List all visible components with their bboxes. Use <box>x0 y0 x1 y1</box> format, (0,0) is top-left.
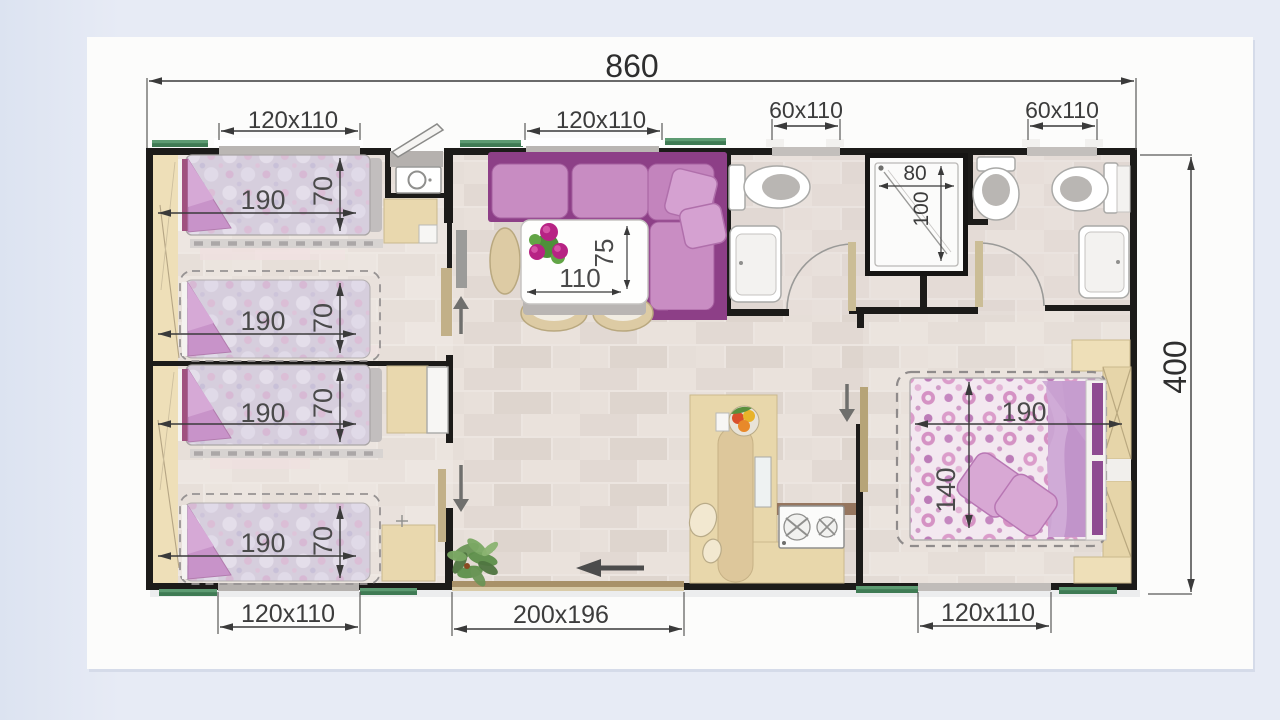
svg-text:70: 70 <box>308 303 338 333</box>
svg-text:80: 80 <box>903 162 926 185</box>
svg-text:190: 190 <box>240 528 285 558</box>
svg-text:60x110: 60x110 <box>1025 97 1099 123</box>
svg-text:120x110: 120x110 <box>248 107 338 134</box>
svg-text:70: 70 <box>308 526 338 556</box>
svg-text:70: 70 <box>308 388 338 418</box>
svg-text:120x110: 120x110 <box>941 599 1035 627</box>
svg-text:190: 190 <box>240 185 285 215</box>
svg-text:100: 100 <box>910 191 933 226</box>
svg-text:75: 75 <box>589 239 619 268</box>
svg-text:400: 400 <box>1157 340 1193 393</box>
svg-text:70: 70 <box>308 176 338 206</box>
svg-text:190: 190 <box>1001 397 1046 427</box>
svg-text:190: 190 <box>240 398 285 428</box>
svg-text:120x110: 120x110 <box>556 107 646 134</box>
svg-text:140: 140 <box>931 467 961 512</box>
svg-text:200x196: 200x196 <box>513 601 609 629</box>
svg-text:60x110: 60x110 <box>769 97 843 123</box>
svg-text:120x110: 120x110 <box>241 600 335 628</box>
svg-text:190: 190 <box>240 306 285 336</box>
svg-text:860: 860 <box>605 48 658 84</box>
